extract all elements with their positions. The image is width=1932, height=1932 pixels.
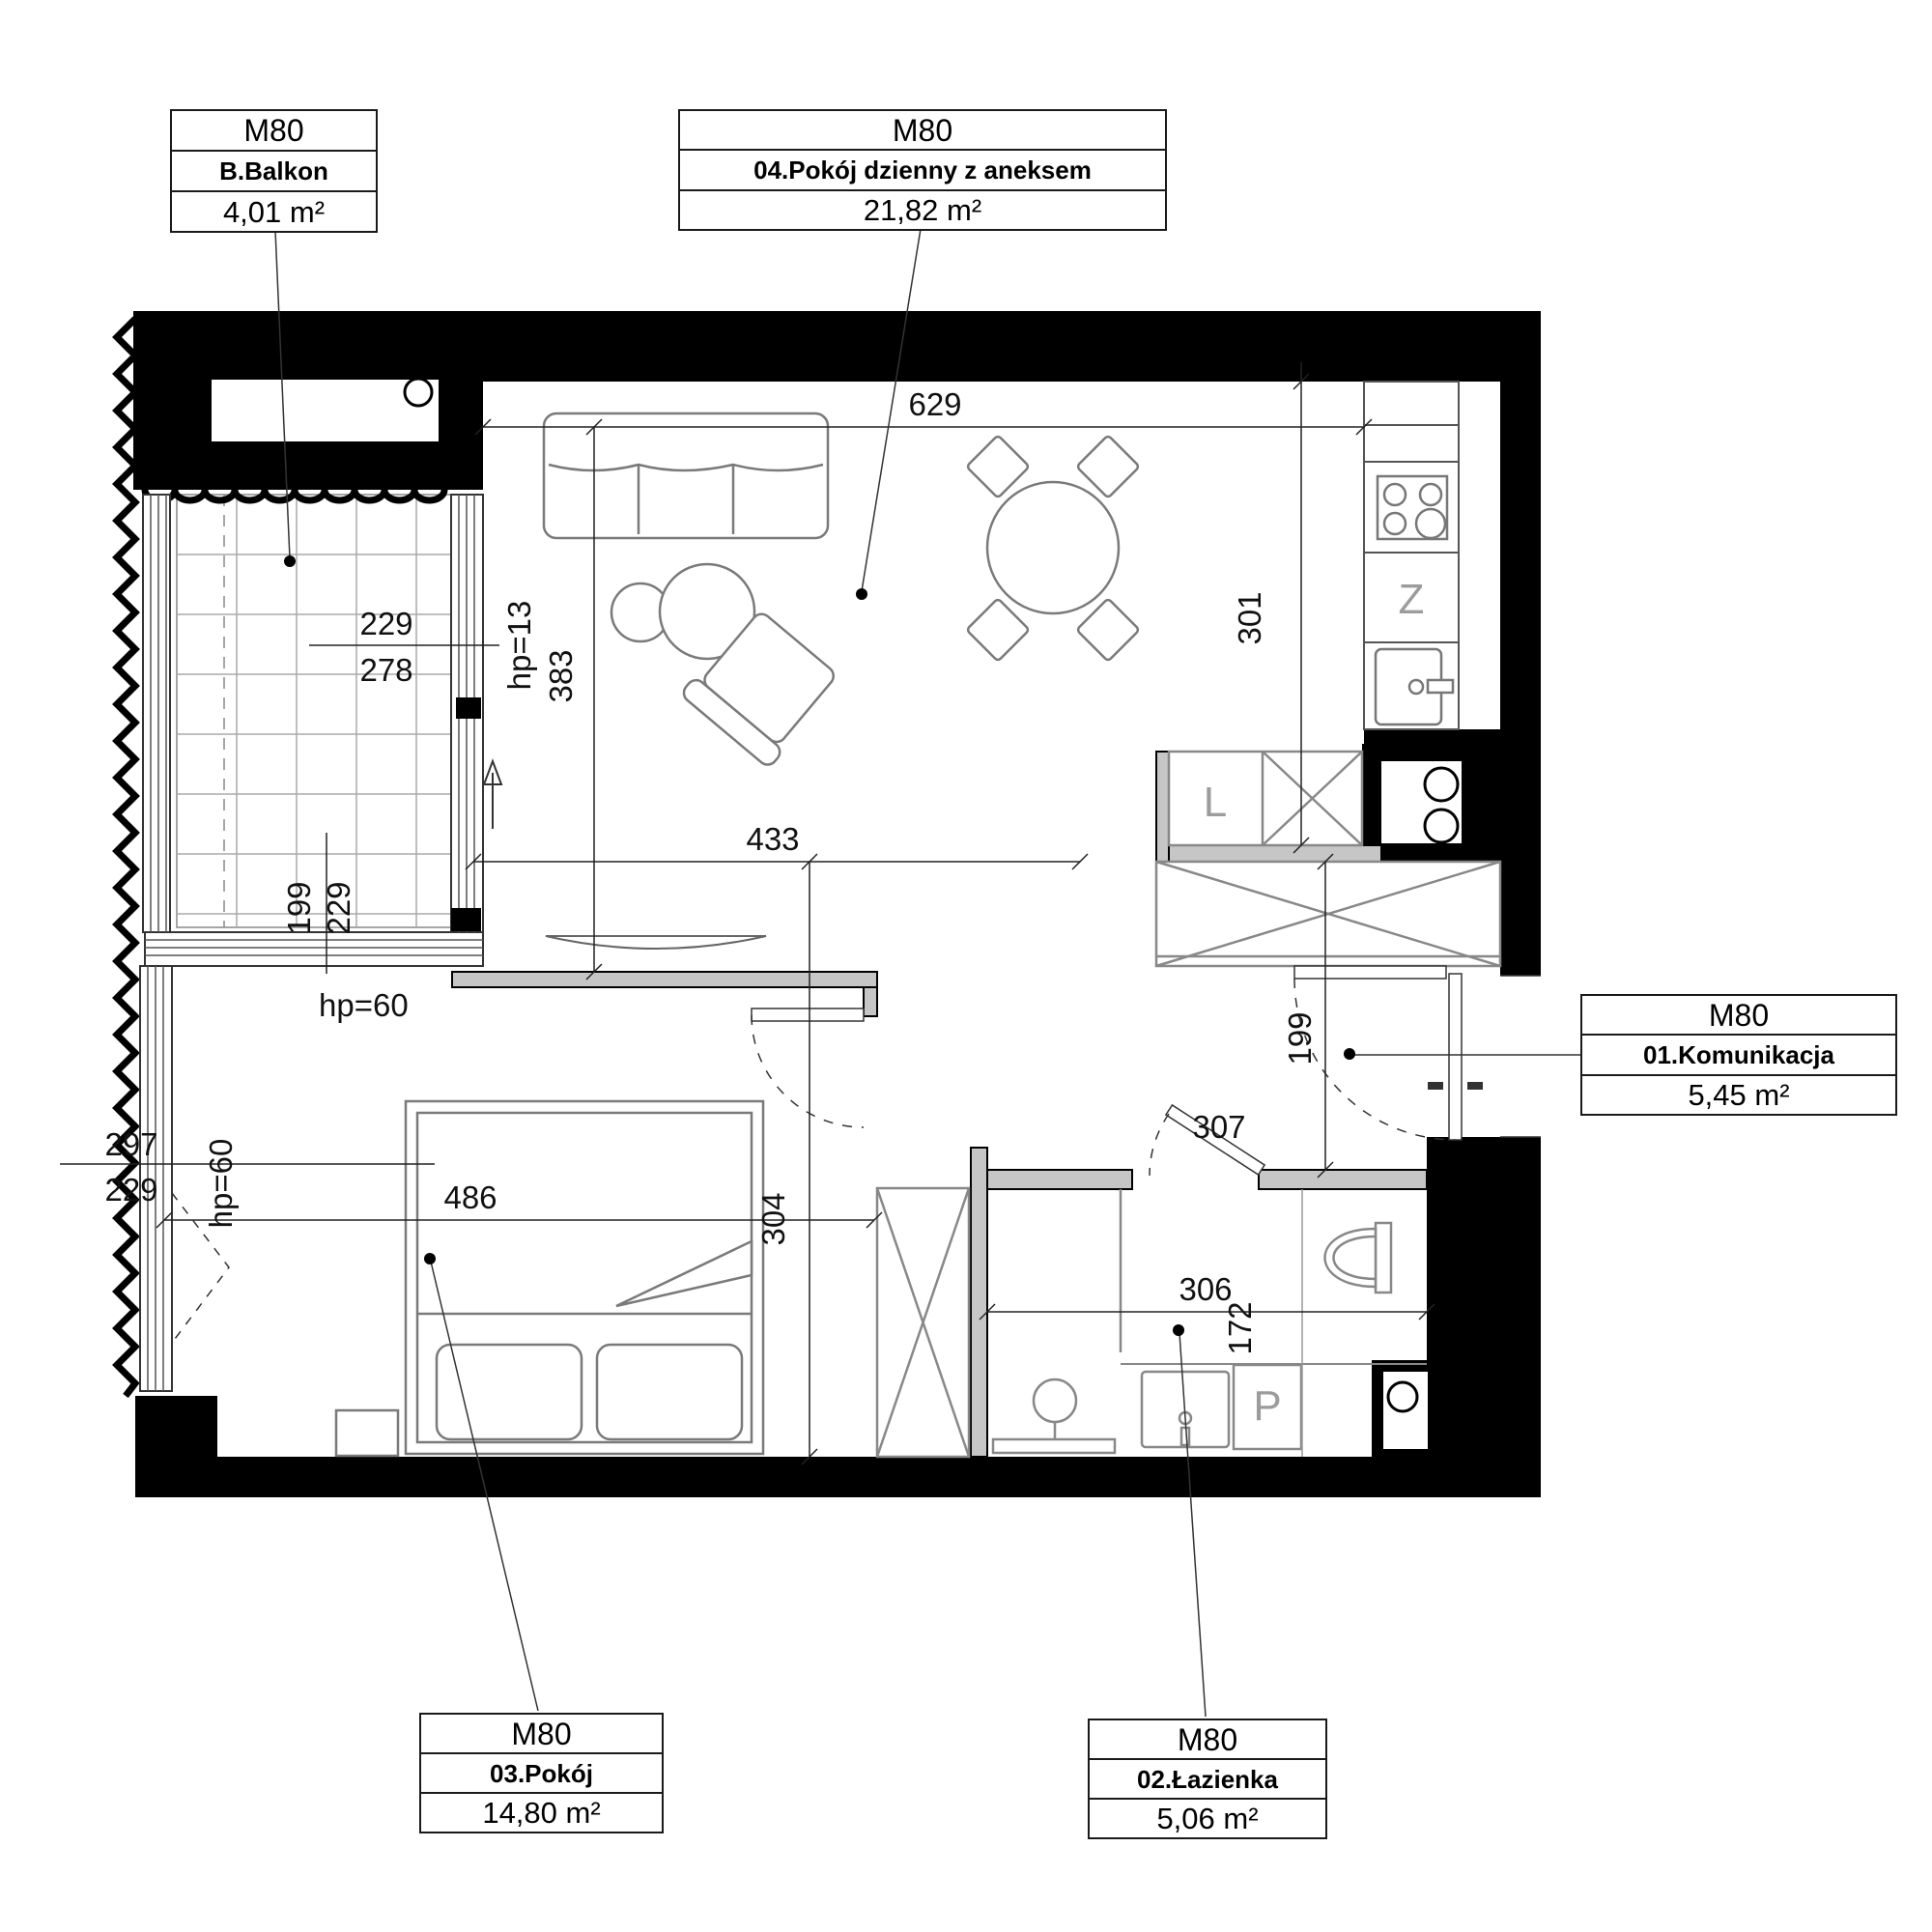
window-hardware	[456, 697, 481, 719]
room-area: 4,01 m²	[172, 192, 376, 231]
unit-label-hall: M80 01.Komunikacja 5,45 m²	[1580, 994, 1897, 1116]
unit-code: M80	[1582, 996, 1895, 1036]
floorplan-page: Z L P	[0, 0, 1932, 1932]
room-area: 14,80 m²	[421, 1794, 662, 1832]
kitchen-sink-icon	[1376, 649, 1453, 724]
room-name: B.Balkon	[172, 152, 376, 192]
unit-code: M80	[421, 1715, 662, 1754]
pillow	[597, 1345, 742, 1439]
entrance-door	[1294, 966, 1541, 1140]
dining-chair	[966, 598, 1029, 661]
door-handle-icon	[1428, 1082, 1443, 1090]
room-area: 5,45 m²	[1582, 1076, 1895, 1114]
left-zigzag-boundary	[117, 319, 135, 1396]
room-name: 01.Komunikacja	[1582, 1036, 1895, 1075]
dim-balcony-depth-inner: 199	[281, 881, 317, 934]
unit-label-balcony: M80 B.Balkon 4,01 m²	[170, 109, 378, 233]
dishwasher-label: Z	[1399, 576, 1425, 623]
dim-living-depth: 383	[543, 649, 579, 702]
drain-pipe-icon	[405, 379, 432, 406]
top-wall-niche	[211, 379, 440, 442]
grab-bar	[993, 1439, 1115, 1453]
dim-bath-width: 306	[1179, 1271, 1232, 1307]
under-balcony-window	[145, 932, 483, 966]
unit-code: M80	[172, 111, 376, 152]
shower-head-icon	[1034, 1379, 1076, 1422]
entry-shelf	[1294, 966, 1446, 979]
dim-living-width: 629	[908, 386, 961, 422]
bedroom-closet	[877, 1188, 969, 1457]
hob-icon	[1378, 476, 1447, 539]
fridge-cabinet	[1169, 752, 1362, 845]
dim-balcony-width-outer: 278	[359, 652, 412, 688]
washer-label: P	[1253, 1382, 1281, 1430]
dim-bedroom-sill-north: hp=60	[319, 987, 409, 1023]
toilet-icon	[1325, 1223, 1392, 1293]
door-handle-icon	[1467, 1082, 1483, 1090]
dim-bath-depth: 172	[1222, 1301, 1258, 1354]
unit-label-living-room: M80 04.Pokój dzienny z aneksem 21,82 m²	[678, 109, 1167, 231]
dining-set	[966, 435, 1139, 661]
window-hardware	[451, 908, 481, 931]
dim-bedroom-width: 486	[443, 1179, 497, 1215]
bed	[406, 1101, 763, 1454]
room-name: 03.Pokój	[421, 1754, 662, 1794]
dim-bedroom-window-outer: 297	[104, 1126, 157, 1162]
dining-chair	[1076, 598, 1139, 661]
balcony-door-open-arrow	[484, 761, 501, 829]
bathroom-shaft-niche	[1372, 1360, 1430, 1457]
dining-chair	[966, 435, 1029, 497]
dim-balcony-depth-outer: 229	[321, 881, 356, 934]
balcony-tile-floor	[177, 495, 451, 927]
pipe-icon	[1425, 810, 1458, 842]
bedroom-door	[752, 1009, 864, 1127]
dim-balcony-door-sill: hp=13	[501, 601, 537, 691]
dim-living-lower-width: 433	[746, 821, 799, 857]
kitchen-shaft-niche	[1381, 761, 1462, 843]
dining-table	[987, 482, 1119, 613]
room-area: 21,82 m²	[680, 191, 1165, 229]
dim-bedroom-sill-west: hp=60	[203, 1139, 239, 1229]
floorplan-canvas: Z L P	[0, 0, 1932, 1932]
room-name: 02.Łazienka	[1090, 1760, 1325, 1800]
room-name: 04.Pokój dzienny z aneksem	[680, 151, 1165, 190]
pipe-icon	[1425, 768, 1458, 801]
dim-entry-clearance: 199	[1282, 1011, 1318, 1065]
tv-sideboard	[546, 936, 766, 949]
fridge-label: L	[1204, 779, 1227, 826]
hall-wardrobe	[1156, 862, 1500, 966]
unit-label-bedroom: M80 03.Pokój 14,80 m²	[419, 1713, 664, 1833]
room-area: 5,06 m²	[1090, 1800, 1325, 1837]
unit-label-bathroom: M80 02.Łazienka 5,06 m²	[1088, 1719, 1327, 1839]
unit-code: M80	[1090, 1720, 1325, 1760]
dim-hall-depth: 304	[755, 1192, 791, 1245]
nightstand	[336, 1410, 398, 1456]
dim-balcony-width-inner: 229	[359, 606, 412, 641]
dining-chair	[1076, 435, 1139, 497]
dim-kitchen-wall: 301	[1232, 591, 1267, 644]
unit-code: M80	[680, 111, 1165, 151]
sofa	[544, 413, 828, 538]
dim-bath-door: 307	[1192, 1109, 1245, 1145]
pipe-icon	[1388, 1382, 1417, 1411]
dim-bedroom-window-inner: 229	[104, 1172, 157, 1207]
pillow	[437, 1345, 582, 1439]
